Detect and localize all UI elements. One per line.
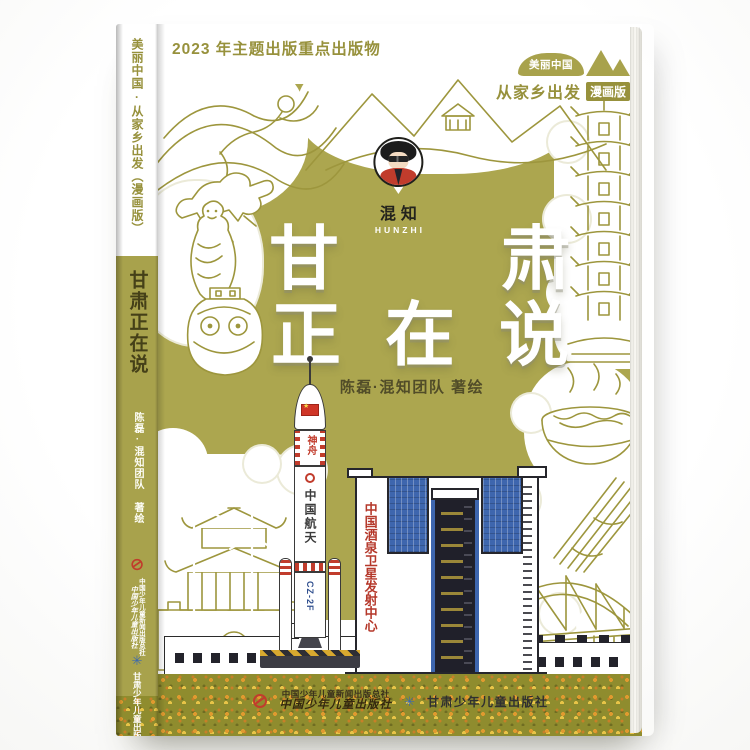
book-title: 甘 肃 正在说 — [269, 224, 571, 370]
spine-author: 陈磊·混知团队 著绘 — [132, 412, 142, 524]
cloud-shape — [242, 444, 282, 484]
hunzhi-logo: 混知 HUNZHI — [358, 137, 438, 235]
building-blue-panel-right — [481, 476, 523, 554]
spine-title: 甘肃正在说 — [128, 270, 147, 375]
rocket-booster-left — [279, 558, 292, 654]
rocket-shenzhou-band: 神舟 — [294, 430, 326, 466]
building-hatch-detail — [523, 484, 532, 670]
building-slot-top — [431, 488, 479, 500]
rocket-illustration: ★ 神舟 中国航天 CZ-2F — [286, 360, 334, 680]
cloud-shape — [546, 120, 590, 164]
speech-bubble-tail-icon — [392, 185, 404, 200]
rocket-shenzhou-label: 神舟 — [305, 435, 315, 455]
cloud-shape — [210, 590, 256, 636]
rocket-lower-stage: CZ-2F — [294, 572, 326, 638]
series-logo-bottom: 从家乡出发 漫画版 — [496, 79, 630, 103]
rocket-checker-band — [294, 562, 326, 572]
spine-series-text: 美丽中国·从家乡出发（漫画版） — [131, 38, 143, 235]
rocket-nozzle — [298, 638, 322, 648]
series-logo: 美丽中国 从家乡出发 漫画版 — [496, 50, 630, 103]
building-sign: 中国酒泉卫星发射中心 — [362, 502, 384, 662]
rocket-booster-right — [328, 558, 341, 654]
book-product-photo: 美丽中国·从家乡出发（漫画版） 甘肃正在说 陈磊·混知团队 著绘 中国少年儿童新… — [0, 0, 750, 750]
spine-publisher-group-2: ✳ 甘肃少年儿童出版社 — [132, 652, 143, 736]
book-front-cover: 2023 年主题出版重点出版物 美丽中国 从家乡出发 漫画版 — [158, 24, 642, 736]
publisher-2: 甘肃少年儿童出版社 — [427, 693, 549, 710]
title-line-1: 甘 肃 — [269, 224, 571, 294]
author-line: 陈磊·混知团队 著绘 — [340, 376, 484, 397]
press2-logo-icon: ✳ — [404, 695, 415, 708]
china-flag-icon: ★ — [301, 404, 319, 416]
rocket-escape-tower — [309, 360, 311, 386]
rocket-model-label: CZ-2F — [305, 581, 315, 612]
page-fore-edge — [630, 27, 642, 733]
mountain-small-icon — [610, 59, 630, 76]
cloud-shape — [538, 592, 582, 636]
publishers-bar: 中国少年儿童新闻出版总社 中国少年儿童出版社 ✳ 甘肃少年儿童出版社 — [158, 684, 642, 718]
spine-publisher-1-imprint: 中国少年儿童出版社 — [130, 578, 138, 656]
book-spine: 美丽中国·从家乡出发（漫画版） 甘肃正在说 陈磊·混知团队 著绘 中国少年儿童新… — [116, 24, 158, 736]
launch-platform — [260, 650, 360, 668]
casc-roundel-icon — [305, 473, 315, 483]
building-roof-cap-right — [517, 466, 547, 478]
building-roof-cap-left — [347, 468, 373, 478]
publisher-1-full: 中国少年儿童新闻出版总社 — [280, 690, 393, 699]
rocket-main-body: 中国航天 — [294, 466, 326, 562]
book: 美丽中国·从家乡出发（漫画版） 甘肃正在说 陈磊·混知团队 著绘 中国少年儿童新… — [116, 24, 654, 736]
series-brand-hill-icon: 美丽中国 — [518, 53, 584, 76]
award-banner: 2023 年主题出版重点出版物 — [172, 37, 381, 59]
press1-logo-icon — [130, 558, 143, 571]
title-char-gan: 甘 — [269, 224, 339, 294]
press1-logo-icon — [252, 693, 268, 709]
series-brand: 美丽中国 — [529, 57, 573, 72]
publisher-1-imprint: 中国少年儿童出版社 — [280, 699, 393, 712]
hunzhi-mascot-icon — [373, 137, 423, 187]
spine-publisher-group-1: 中国少年儿童新闻出版总社 中国少年儿童出版社 — [130, 558, 145, 656]
spine-publisher-2: 甘肃少年儿童出版社 — [133, 672, 142, 736]
series-logo-top: 美丽中国 — [496, 50, 630, 76]
title-char-su: 肃 — [501, 224, 571, 294]
window-row — [537, 657, 627, 667]
spine-publisher-1-names: 中国少年儿童新闻出版总社 中国少年儿童出版社 — [130, 578, 145, 656]
series-edition-badge: 漫画版 — [586, 82, 630, 101]
publisher-1: 中国少年儿童新闻出版总社 中国少年儿童出版社 — [280, 690, 393, 712]
title-line-2: 正在说 — [225, 300, 615, 370]
building-blue-panel-left — [387, 476, 429, 554]
series-tagline: 从家乡出发 — [496, 79, 581, 103]
hunzhi-name-cn: 混知 — [358, 200, 438, 224]
rocket-casc-label: 中国航天 — [304, 489, 316, 545]
cloud-shape — [510, 392, 552, 434]
building-assembly-slot — [431, 488, 479, 674]
press2-logo-icon: ✳ — [132, 653, 143, 668]
launch-center-building: 中国酒泉卫星发射中心 — [355, 476, 539, 680]
